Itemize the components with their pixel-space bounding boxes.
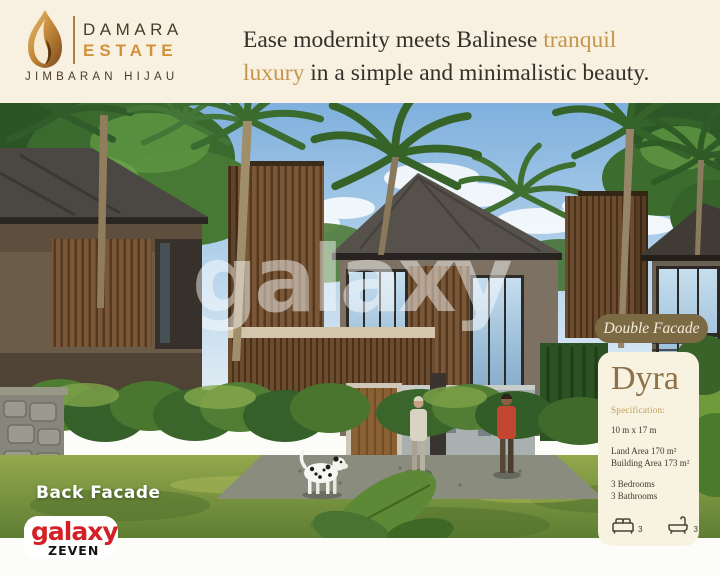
spec-bedrooms: 3 Bedrooms [611, 478, 693, 490]
headline-gold1: tranquil [537, 27, 616, 53]
spec-areas: Land Area 170 m² Building Area 173 m² [611, 445, 693, 469]
spec-dimensions: 10 m x 17 m [611, 424, 693, 436]
brand-divider [73, 16, 75, 64]
spec-card: Dyra Specification: 10 m x 17 m Land Are… [598, 352, 699, 546]
bathtub-icon [666, 515, 690, 534]
brand-name-line2: ESTATE [83, 42, 183, 59]
spec-label: Specification: [611, 405, 693, 415]
headline-part1: Ease modernity meets Balinese [243, 27, 537, 53]
unit-title: Dyra [611, 360, 693, 398]
headline: Ease modernity meets Balinese tranquil l… [243, 24, 718, 90]
flame-icon [26, 9, 64, 69]
publisher-logo: galaxy ZEVEN [24, 516, 118, 558]
amenity-icons: 3 3 [611, 515, 693, 534]
brand-wordmark: DAMARA ESTATE [83, 21, 183, 59]
brand-subtitle: JIMBARAN HIJAU [25, 71, 178, 83]
flyer: DAMARA ESTATE JIMBARAN HIJAU Ease modern… [0, 0, 720, 576]
headline-gold2: luxury [243, 60, 304, 86]
publisher-sub: ZEVEN [48, 543, 99, 558]
photo-label: Back Facade [36, 483, 161, 503]
spec-land-area: Land Area 170 m² [611, 445, 693, 457]
header: DAMARA ESTATE JIMBARAN HIJAU Ease modern… [0, 0, 720, 103]
bed-icon [611, 516, 635, 534]
garden-wall [228, 327, 435, 392]
spec-rooms: 3 Bedrooms 3 Bathrooms [611, 478, 693, 502]
spec-building-area: Building Area 173 m² [611, 457, 693, 469]
bedroom-count: 3 [611, 516, 642, 534]
bed-count: 3 [638, 526, 642, 534]
headline-part2: in a simple and minimalistic beauty. [304, 60, 649, 86]
bath-count: 3 [693, 526, 697, 534]
publisher-name: galaxy [31, 517, 118, 546]
brand-name-line1: DAMARA [83, 21, 183, 38]
bathroom-count: 3 [666, 515, 697, 534]
facade-type-badge: Double Facade [595, 314, 708, 343]
spec-bathrooms: 3 Bathrooms [611, 490, 693, 502]
